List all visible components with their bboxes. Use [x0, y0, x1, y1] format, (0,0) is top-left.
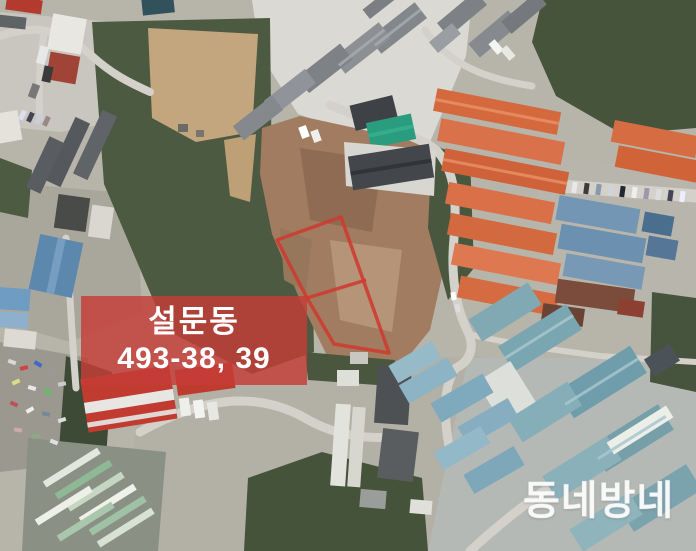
small-hut [350, 352, 368, 364]
white-building [88, 205, 114, 240]
parcel-label-dong: 설문동 [148, 303, 240, 341]
aerial-photo [0, 0, 696, 551]
dark-building [54, 194, 90, 232]
dark-building [377, 428, 419, 482]
white-gabled-building [47, 13, 87, 54]
watermark-text: 동네방네 [523, 481, 674, 521]
small-hut [337, 370, 359, 386]
parcel-annotation-label: 설문동 493-38, 39 [81, 296, 307, 385]
parcel-label-lot-numbers: 493-38, 39 [117, 341, 270, 378]
blue-roof-building [0, 287, 31, 311]
aerial-map-image: 설문동 493-38, 39 동네방네 [0, 0, 696, 551]
green-right-mid [650, 292, 696, 392]
central-dark-warehouse [344, 142, 436, 196]
